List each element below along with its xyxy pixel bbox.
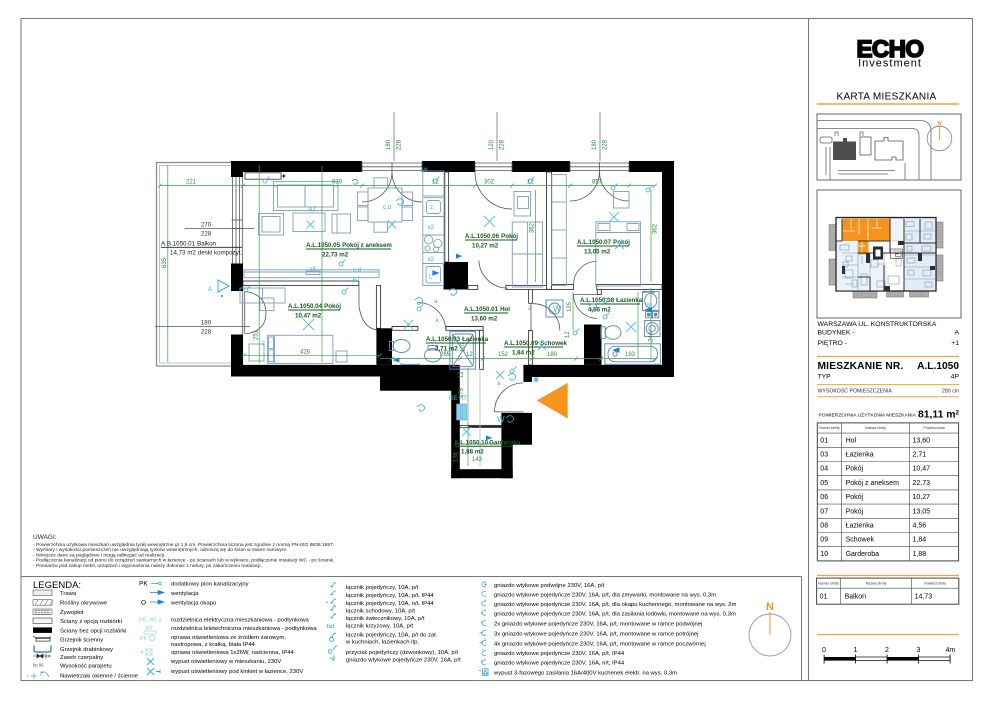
svg-text:193: 193 (625, 352, 636, 358)
svg-text:270: 270 (201, 222, 212, 229)
svg-text:oprawa oświetleniowa ze źródłe: oprawa oświetleniowa ze źródłem żarowym, (171, 635, 286, 641)
svg-text:01: 01 (820, 437, 828, 444)
svg-text:Investment: Investment (858, 58, 922, 70)
svg-text:228: 228 (201, 329, 212, 336)
svg-text:1,84: 1,84 (913, 537, 927, 544)
svg-text:j: j (545, 301, 547, 307)
svg-text:180: 180 (592, 139, 598, 150)
svg-text:przycisk pojedyńczy (dzwonkowy: przycisk pojedyńczy (dzwonkowy), 10A, p/… (346, 650, 458, 656)
svg-text:Pokój: Pokój (846, 508, 864, 515)
svg-text:Nazwa strefy: Nazwa strefy (865, 426, 886, 430)
svg-text:Hol: Hol (846, 437, 857, 444)
svg-text:A.B.1050.01Balkon: A.B.1050.01Balkon (161, 241, 217, 248)
svg-text:06: 06 (820, 494, 828, 501)
svg-text:POWIERZCHNIA UŻYTKOWA MIESZKAN: POWIERZCHNIA UŻYTKOWA MIESZKANIA (819, 412, 917, 419)
svg-text:Łazienka: Łazienka (846, 523, 874, 530)
svg-text:125: 125 (567, 301, 573, 312)
svg-text:Schowek: Schowek (846, 537, 875, 544)
svg-text:136: 136 (454, 451, 460, 462)
svg-text:22,73: 22,73 (913, 480, 931, 487)
svg-text:Rośliny okrywowe: Rośliny okrywowe (60, 601, 108, 607)
svg-text:4,56: 4,56 (913, 523, 927, 530)
svg-text:gniazdo wtykowe pojedyńcze 230: gniazdo wtykowe pojedyńcze 230V, 16A, p/… (494, 651, 625, 657)
svg-text:426: 426 (300, 349, 311, 355)
svg-text:Nazwa strefy: Nazwa strefy (866, 581, 887, 585)
svg-text:Grzejnik ścienny: Grzejnik ścienny (60, 638, 103, 644)
svg-text:nastropowa, z kratką, biała IP: nastropowa, z kratką, biała IP44 (171, 642, 256, 648)
svg-text:gniazdo wtykowe pojedyńcze 230: gniazdo wtykowe pojedyńcze 230V, 16A, p/… (494, 602, 737, 608)
svg-text:A.L.1050.08Łazienka: A.L.1050.08Łazienka (580, 297, 643, 304)
svg-text:w kuchniach, łazienkach itp.: w kuchniach, łazienkach itp. (345, 640, 419, 646)
svg-text:A: A (208, 287, 212, 293)
svg-text:łącznik pojedyńczy, 10A, p/t: łącznik pojedyńczy, 10A, p/t (346, 585, 419, 591)
svg-text:- Pomiarów pod zakup mebli, ur: - Pomiarów pod zakup mebli, urządzeń i w… (33, 563, 262, 569)
svg-text:x2: x2 (428, 225, 435, 231)
svg-text:10: 10 (820, 551, 828, 558)
svg-text:A: A (140, 650, 144, 656)
svg-text:12: 12 (565, 331, 571, 338)
svg-text:Numer strefy: Numer strefy (818, 581, 839, 585)
svg-text:03: 03 (820, 452, 828, 459)
svg-text:Powierzchnia: Powierzchnia (924, 581, 945, 585)
svg-text:228: 228 (603, 139, 609, 150)
svg-text:Ściany z opcją rozbiórki: Ściany z opcją rozbiórki (60, 617, 122, 625)
svg-text:A.L.1050.09Schowek: A.L.1050.09Schowek (504, 340, 567, 347)
svg-text:Garderoba: Garderoba (846, 551, 880, 558)
svg-text:1,88 m2: 1,88 m2 (461, 449, 484, 456)
svg-text:Zawór czerpalny: Zawór czerpalny (60, 655, 103, 661)
svg-text:O: O (141, 600, 146, 607)
svg-text:221: 221 (186, 180, 197, 186)
svg-text:A: A (954, 330, 959, 337)
svg-text:09: 09 (820, 537, 828, 544)
svg-text:gniazdo wtykowe pojedyńcze 230: gniazdo wtykowe pojedyńcze 230V, 16A, n/… (494, 660, 625, 666)
svg-text:13,05 m2: 13,05 m2 (584, 249, 611, 256)
svg-text:4x gniazdo wtykowe pojedyńcze: 4x gniazdo wtykowe pojedyńcze 230V, 16A,… (494, 641, 706, 647)
svg-text:RE, RE.1: RE, RE.1 (139, 618, 161, 624)
svg-text:N: N (937, 122, 941, 128)
svg-text:A.L.1050.05Pokój z aneksem: A.L.1050.05Pokój z aneksem (306, 242, 392, 249)
svg-text:PIĘTRO -: PIĘTRO - (818, 340, 847, 347)
svg-text:W: W (553, 304, 562, 314)
svg-text:14,73: 14,73 (915, 594, 933, 601)
svg-text:BUDYNEK -: BUDYNEK - (818, 330, 855, 337)
svg-text:TYP: TYP (818, 374, 832, 381)
svg-text:857: 857 (592, 180, 603, 186)
svg-text:hp 90: hp 90 (33, 663, 44, 668)
svg-text:x4: x4 (310, 266, 316, 272)
svg-text:rozdzielnica elektryczna miesz: rozdzielnica elektryczna mieszkaniowa - … (171, 618, 310, 624)
svg-text:180: 180 (547, 352, 558, 358)
svg-text:1,88: 1,88 (913, 551, 927, 558)
svg-text:2x gniazdo wtykowe pojedyńcze: 2x gniazdo wtykowe pojedyńcze 230V, 16A,… (494, 622, 702, 628)
svg-text:PF: PF (140, 636, 148, 642)
svg-text:Żywopłot: Żywopłot (60, 609, 84, 616)
svg-text:152: 152 (498, 352, 509, 358)
svg-text:WYSOKOŚĆ POMIESZCZENIA: WYSOKOŚĆ POMIESZCZENIA (818, 387, 893, 395)
svg-text:180: 180 (386, 139, 392, 150)
svg-text:12: 12 (459, 371, 465, 378)
svg-text:04: 04 (820, 466, 828, 473)
svg-text:244: 244 (649, 331, 655, 342)
svg-text:362: 362 (653, 223, 659, 234)
svg-text:05: 05 (820, 480, 828, 487)
svg-text:A.L.1050: A.L.1050 (917, 361, 959, 372)
svg-text:362: 362 (530, 222, 536, 233)
svg-text:Balkon: Balkon (845, 594, 867, 601)
svg-text:Ściany bez opcji rozbiórki: Ściany bez opcji rozbiórki (60, 627, 126, 635)
svg-text:c,d: c,d (353, 268, 361, 274)
svg-text:rozdzielnica teletechniczna mi: rozdzielnica teletechniczna mieszkaniowa… (171, 626, 317, 632)
svg-text:81,11 m2: 81,11 m2 (918, 410, 960, 421)
svg-text:0: 0 (822, 647, 826, 654)
svg-text:10,47 m2: 10,47 m2 (295, 313, 322, 320)
svg-text:2: 2 (262, 341, 265, 347)
svg-text:- Podłączenia kanalizacji od p: - Podłączenia kanalizacji od pionu do ur… (33, 558, 335, 564)
svg-text:wypust 3-fazowego zasilania 16: wypust 3-fazowego zasilania 16A/400V kuc… (493, 670, 677, 676)
svg-text:228: 228 (500, 139, 506, 150)
svg-text:łącznik pojedyńczy, 10A, p/t d: łącznik pojedyńczy, 10A, p/t do zał. (346, 633, 438, 639)
svg-text:RE RT: RE RT (449, 396, 467, 402)
svg-text:z: z (430, 205, 433, 211)
svg-text:4P: 4P (951, 374, 960, 381)
svg-text:łącznik pojedyńczy, 10A, p/t,: łącznik pojedyńczy, 10A, p/t, IP44 (346, 593, 434, 599)
svg-text:302: 302 (484, 180, 495, 186)
svg-text:łącznik schodowy, 10A, p/t: łącznik schodowy, 10A, p/t (346, 608, 415, 614)
svg-text:łącznik świecznikowy, 10A, p/t: łącznik świecznikowy, 10A, p/t (346, 616, 425, 622)
svg-text:Nawietrzaki okienne / ścienne: Nawietrzaki okienne / ścienne (60, 673, 139, 679)
svg-text:gniazdo wtykowe pojedyńcze 230: gniazdo wtykowe pojedyńcze 230V, 16A, p/… (346, 657, 461, 663)
svg-text:2,71: 2,71 (913, 452, 927, 459)
svg-text:A.L.1050.01Hol: A.L.1050.01Hol (464, 306, 510, 313)
svg-text:265: 265 (440, 352, 451, 358)
svg-text:07: 07 (820, 508, 828, 515)
svg-text:KARTA MIESZKANIA: KARTA MIESZKANIA (836, 92, 936, 103)
svg-text:A.L.1050.10Garderoba: A.L.1050.10Garderoba (454, 440, 521, 447)
svg-text:+1: +1 (951, 340, 959, 347)
svg-text:4m: 4m (946, 647, 956, 654)
svg-text:LEGENDA:: LEGENDA: (33, 580, 81, 591)
svg-text:A.L.1050.06Pokój: A.L.1050.06Pokój (465, 233, 518, 240)
svg-text:wentylacja: wentylacja (170, 591, 199, 597)
svg-text:839: 839 (332, 180, 343, 186)
svg-text:gniazdo wtykowe pojedyńcze 230: gniazdo wtykowe pojedyńcze 230V, 16A, p/… (494, 612, 736, 618)
svg-text:10,47: 10,47 (913, 466, 931, 473)
svg-text:e,f: e,f (353, 277, 360, 283)
svg-text:10,27: 10,27 (913, 494, 931, 501)
svg-text:22,73 m2: 22,73 m2 (322, 252, 349, 259)
svg-text:W: W (422, 168, 428, 174)
svg-text:wypust oświetleniowy w mieszka: wypust oświetleniowy w mieszkaniu, 230V (170, 659, 281, 665)
svg-text:251: 251 (254, 329, 260, 340)
svg-text:łącznik krzyżowy, 10A, p/t: łącznik krzyżowy, 10A, p/t (346, 623, 413, 629)
svg-text:Pokój: Pokój (846, 494, 864, 501)
svg-text:2: 2 (885, 647, 889, 654)
svg-text:W: W (497, 415, 505, 424)
svg-text:oprawa oświetleniowa 1x26W, na: oprawa oświetleniowa 1x26W, naścienna, I… (171, 650, 295, 656)
svg-text:wypust oświetleniowy pod kinki: wypust oświetleniowy pod kinkiet w łazie… (170, 669, 303, 675)
svg-text:PK: PK (139, 581, 148, 588)
svg-text:Wysokość parapetu: Wysokość parapetu (60, 664, 112, 670)
svg-text:08: 08 (820, 523, 828, 530)
svg-text:14,73 m2deski kompozyt.: 14,73 m2deski kompozyt. (170, 250, 242, 257)
svg-text:A.L.1050.03Łazienka: A.L.1050.03Łazienka (426, 336, 489, 343)
svg-text:Trawa: Trawa (60, 591, 77, 597)
svg-text:MIESZKANIE NR.: MIESZKANIE NR. (818, 361, 904, 372)
svg-text:- Powierzchnia użytkowa mieszk: - Powierzchnia użytkowa mieszkań uwzględ… (33, 542, 334, 548)
svg-text:635: 635 (162, 257, 168, 268)
svg-text:10,27 m2: 10,27 m2 (472, 243, 499, 250)
svg-text:wentylacja okapu: wentylacja okapu (170, 601, 216, 607)
svg-text:Powierzchnia: Powierzchnia (923, 426, 944, 430)
svg-text:Grzejnik drabinkowy: Grzejnik drabinkowy (60, 647, 113, 653)
svg-text:UWAGI:: UWAGI: (33, 534, 57, 541)
svg-text:143: 143 (472, 457, 483, 463)
svg-text:A.L.1050.07Pokój: A.L.1050.07Pokój (577, 239, 630, 246)
svg-text:Pokój z aneksem: Pokój z aneksem (846, 480, 899, 487)
svg-text:Numer strefy: Numer strefy (819, 426, 840, 430)
svg-text:Łazienka: Łazienka (846, 452, 874, 459)
svg-text:1: 1 (854, 647, 858, 654)
svg-text:gniazdo wtykowe podwójne 230V,: gniazdo wtykowe podwójne 230V, 16A, p/t (494, 583, 605, 589)
svg-text:e,f: e,f (309, 207, 316, 213)
svg-text:228: 228 (201, 231, 212, 238)
svg-text:2,71 m2: 2,71 m2 (435, 346, 458, 353)
svg-text:A.L.1050.04Pokój: A.L.1050.04Pokój (288, 303, 341, 310)
svg-text:Pokój: Pokój (846, 466, 864, 473)
svg-text:c,d: c,d (383, 205, 391, 211)
svg-text:13,05: 13,05 (913, 508, 931, 515)
svg-text:180: 180 (201, 320, 212, 327)
svg-text:x2: x2 (428, 257, 435, 263)
svg-text:13,60: 13,60 (913, 437, 931, 444)
svg-text:01: 01 (820, 594, 828, 601)
svg-text:- Wymiary i wysokości pomieszc: - Wymiary i wysokości pomieszczeń nie uw… (33, 547, 287, 553)
svg-text:1,84 m2: 1,84 m2 (512, 350, 535, 357)
svg-text:WARSZAWA UL. KONSTRUKTORSKA: WARSZAWA UL. KONSTRUKTORSKA (818, 321, 937, 328)
svg-text:120: 120 (489, 139, 495, 150)
svg-text:- Niniejsze dane są poglądowe: - Niniejsze dane są poglądowe i mogą odb… (33, 552, 165, 558)
svg-text:3: 3 (917, 647, 921, 654)
svg-text:dodatkowy pion kanalizacyjny: dodatkowy pion kanalizacyjny (171, 582, 249, 588)
svg-text:łącznik pojedyńczy, 10A, n/t,: łącznik pojedyńczy, 10A, n/t, IP44 (346, 601, 434, 607)
svg-text:12: 12 (466, 352, 473, 358)
svg-text:N: N (766, 601, 774, 613)
svg-text:3x gniazdo wtykowe pojedyńcze: 3x gniazdo wtykowe pojedyńcze 230V, 16A,… (494, 632, 698, 638)
svg-text:13,60 m2: 13,60 m2 (471, 316, 498, 323)
svg-text:gniazdo wtykowe pojedyńcze 230: gniazdo wtykowe pojedyńcze 230V, 16A, p/… (494, 593, 716, 599)
svg-text:280 cm: 280 cm (942, 389, 959, 395)
svg-text:228: 228 (397, 139, 403, 150)
